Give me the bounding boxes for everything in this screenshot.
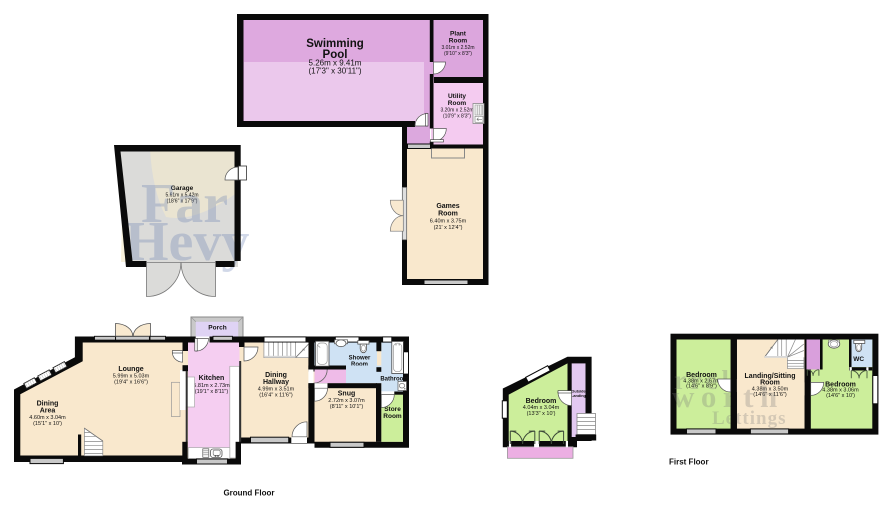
svg-text:Snug: Snug xyxy=(338,391,356,398)
svg-text:Porch: Porch xyxy=(208,325,226,332)
svg-text:Room: Room xyxy=(449,38,468,45)
svg-text:Dining: Dining xyxy=(265,372,287,379)
svg-text:(15'1" x 10'): (15'1" x 10') xyxy=(33,421,62,427)
svg-text:(13'3" x 10'): (13'3" x 10') xyxy=(527,411,556,417)
svg-text:(8'11" x 10'1"): (8'11" x 10'1") xyxy=(330,404,364,410)
svg-text:(19'1" x 8'11"): (19'1" x 8'11") xyxy=(195,389,229,395)
svg-text:First Floor: First Floor xyxy=(669,458,709,467)
svg-text:(17'3" x 30'11"): (17'3" x 30'11") xyxy=(308,67,361,76)
svg-text:Bedroom: Bedroom xyxy=(526,398,557,405)
svg-text:WC: WC xyxy=(853,356,864,363)
svg-text:Dining: Dining xyxy=(37,401,59,408)
svg-text:Shower: Shower xyxy=(349,356,371,362)
svg-text:Plant: Plant xyxy=(450,31,467,38)
svg-text:Kitchen: Kitchen xyxy=(199,375,225,382)
svg-text:(14'6" x 10'): (14'6" x 10') xyxy=(826,393,855,399)
svg-text:Lettings: Lettings xyxy=(712,408,787,429)
svg-text:Games: Games xyxy=(436,203,459,210)
svg-text:Ground Floor: Ground Floor xyxy=(223,489,274,498)
svg-text:(9'10" x 8'3"): (9'10" x 8'3") xyxy=(444,51,472,57)
svg-text:Room: Room xyxy=(448,100,467,107)
svg-text:Area: Area xyxy=(40,408,56,415)
svg-text:Landing: Landing xyxy=(571,394,586,398)
svg-text:Store: Store xyxy=(384,406,401,413)
svg-text:Room: Room xyxy=(438,211,458,218)
svg-text:Room: Room xyxy=(383,413,402,420)
svg-text:Lounge: Lounge xyxy=(118,366,143,373)
svg-text:(19'4" x 16'6"): (19'4" x 16'6") xyxy=(114,380,148,386)
svg-text:(21' x 12'4"): (21' x 12'4") xyxy=(434,225,463,231)
svg-text:(10'9" x 8'3"): (10'9" x 8'3") xyxy=(443,114,471,120)
svg-text:(16'4" x 11'6"): (16'4" x 11'6") xyxy=(259,392,293,398)
svg-text:Utility: Utility xyxy=(448,93,466,100)
svg-text:Hallway: Hallway xyxy=(263,379,289,386)
svg-text:6.40m x 3.75m: 6.40m x 3.75m xyxy=(430,219,467,225)
